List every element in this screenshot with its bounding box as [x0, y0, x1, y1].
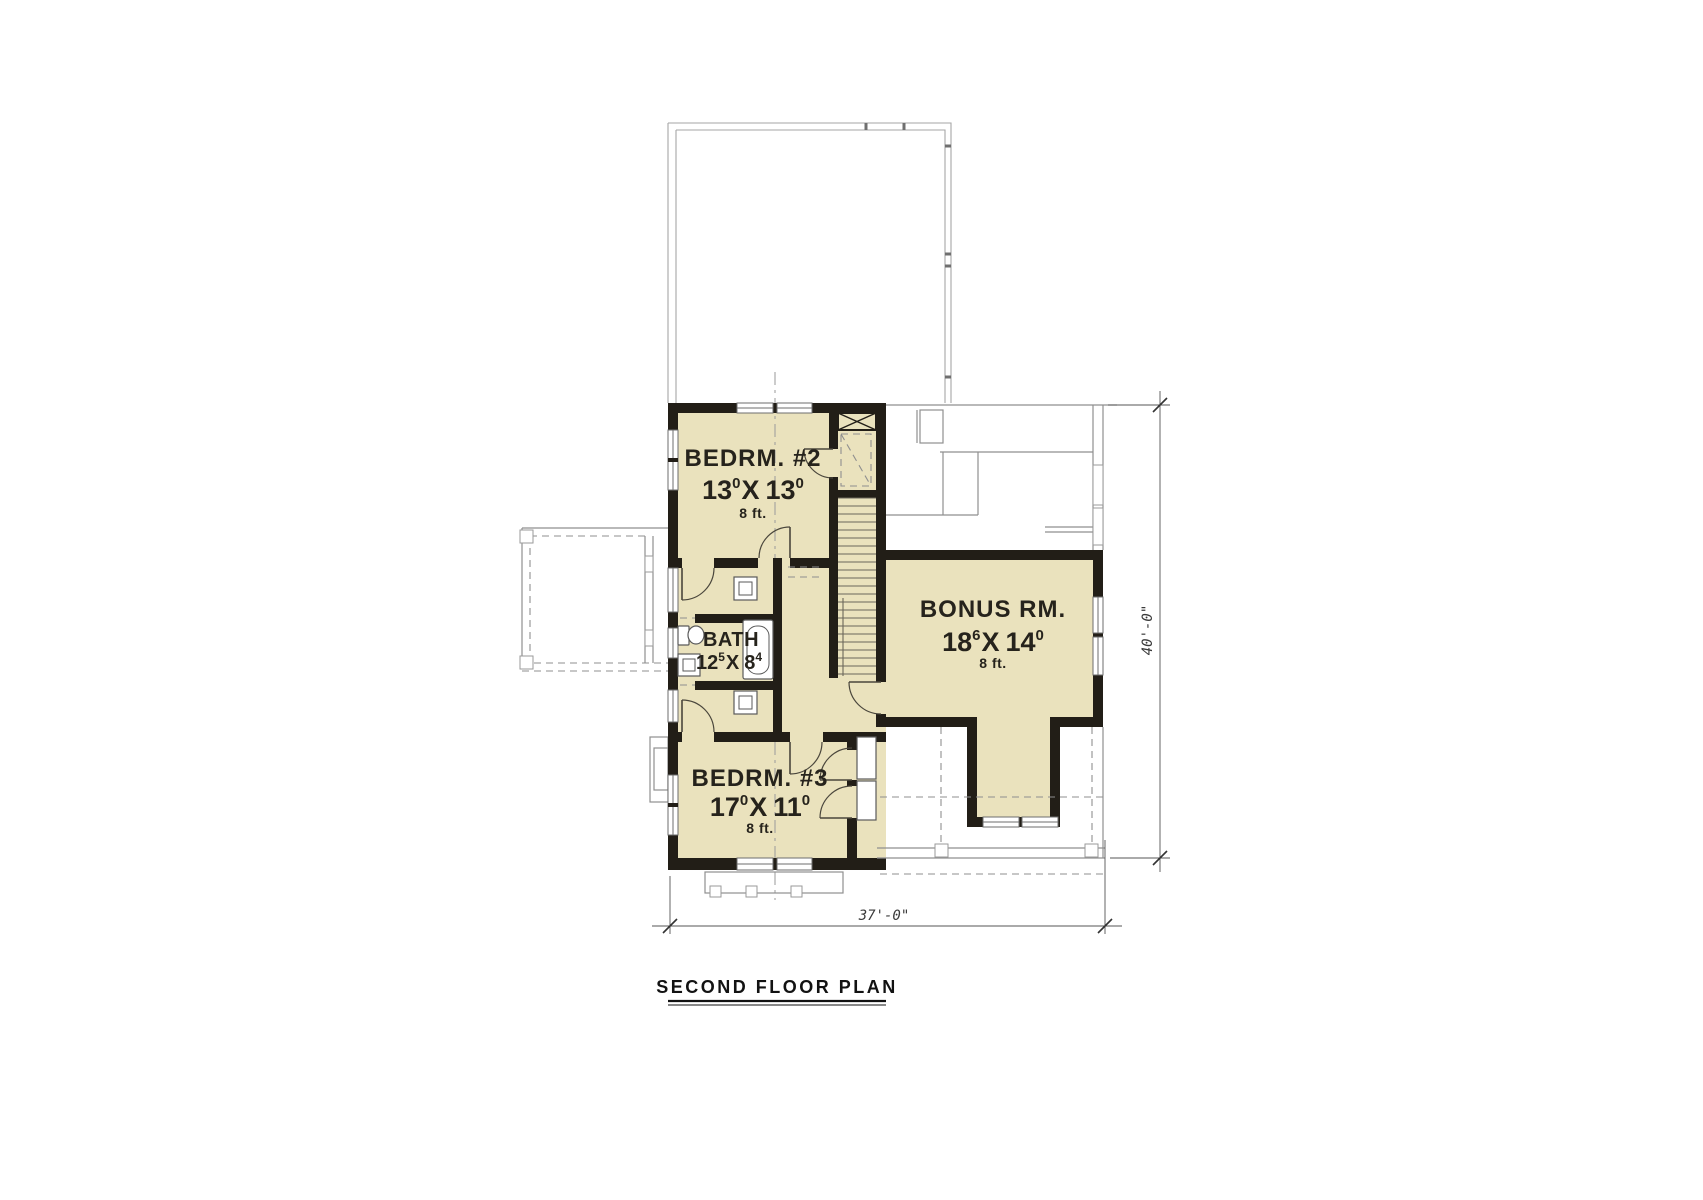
garage-outline-outer: [668, 123, 951, 403]
roof-post-2: [1085, 844, 1098, 857]
bonus-room-name: BONUS RM.: [920, 596, 1066, 623]
dimension-depth: 40'-0": [1108, 391, 1170, 872]
wall-bedroom3-top-a: [668, 732, 682, 742]
reference-window-1: [1093, 465, 1103, 505]
wall-bedroom2-bottom-a: [668, 558, 682, 568]
bumpout-inner: [654, 748, 668, 790]
roof-post-1: [935, 844, 948, 857]
porch-left-dashed-bottom: [522, 663, 668, 671]
bedroom3-closets: [857, 737, 876, 820]
porch-bottom-outline: [705, 872, 843, 897]
bedroom3-ceiling: 8 ft.: [746, 820, 773, 836]
bonus-room-ceiling: 8 ft.: [979, 655, 1006, 671]
wall-bedroom3-right-c: [847, 818, 857, 858]
porch-bottom-post-1: [710, 886, 721, 897]
wall-bedroom3-right-a: [847, 742, 857, 750]
toilet-tank: [678, 626, 689, 645]
bedroom2-size: 130X130: [702, 475, 804, 505]
closet-2: [857, 781, 876, 820]
wall-dormer-right: [1050, 717, 1060, 827]
bath-name: BATH: [703, 629, 759, 651]
wall-bath-bottom: [695, 681, 773, 690]
reference-rooms-below: [878, 405, 1117, 550]
porch-left-window-mark-1: [645, 556, 653, 572]
wall-bedroom3-right-b: [847, 780, 857, 786]
floor-plan-drawing: 37'-0" 40'-0" BEDRM. #2 130X130 8 ft. BA…: [0, 0, 1703, 1200]
bedroom2-name: BEDRM. #2: [684, 445, 821, 472]
bonus-room-size: 186X140: [942, 627, 1044, 657]
garage-roof-outline: [668, 123, 951, 403]
wall-bedroom3-top-b: [714, 732, 790, 742]
bedroom3-size: 170X110: [710, 792, 810, 822]
window-mullion: [668, 803, 678, 807]
reference-inner-walls: [878, 452, 1093, 515]
reference-half-wall: [1045, 527, 1093, 532]
toilet-bowl: [688, 626, 704, 644]
wall-closet-bottom: [829, 490, 876, 498]
wall-bonus-top: [876, 550, 1103, 560]
bedroom2-ceiling: 8 ft.: [739, 505, 766, 521]
bumpout-outer: [650, 737, 668, 802]
wall-stair-left: [829, 498, 838, 678]
bonus-room-fill: [876, 550, 1103, 827]
wall-dormer-left: [967, 717, 977, 827]
reference-window-2: [1093, 508, 1103, 545]
bath-size: 125X84: [696, 650, 762, 674]
wall-bedroom2-closet-upper: [829, 403, 838, 449]
wall-bedroom2-bottom-c: [790, 558, 829, 568]
floor-plan-sheet: 37'-0" 40'-0" BEDRM. #2 130X130 8 ft. BA…: [0, 0, 1703, 1200]
closet-1: [857, 737, 876, 779]
porch-left-outline: [520, 528, 668, 671]
porch-left-dashed-inner: [530, 536, 645, 663]
vanity-sink-2: [734, 691, 757, 714]
garage-outline-inner: [676, 130, 945, 403]
window-mullion: [668, 458, 678, 462]
dimension-depth-text: 40'-0": [1140, 605, 1156, 656]
porch-bottom-post-2: [746, 886, 757, 897]
bedroom3-name: BEDRM. #3: [691, 765, 828, 792]
garage-outline-ticks-right: [945, 146, 951, 377]
wall-bonus-bottom-left: [876, 717, 977, 727]
title-block: SECOND FLOOR PLAN: [656, 977, 898, 1005]
bumpout-below-outline: [650, 737, 668, 802]
porch-left-window-mark-2: [645, 630, 653, 646]
porch-left-post-bottom: [520, 656, 533, 669]
wall-hall-center: [773, 558, 782, 742]
porch-bottom-post-3: [791, 886, 802, 897]
vanity-sink-1: [734, 577, 757, 600]
dimension-depth-lines: [1108, 391, 1170, 872]
porch-left-post-top: [520, 530, 533, 543]
page-title: SECOND FLOOR PLAN: [656, 977, 898, 997]
wall-stair-right-upper: [876, 403, 886, 682]
wall-bedroom2-bottom-b: [714, 558, 758, 568]
reference-closet-box: [920, 410, 943, 443]
dimension-width-text: 37'-0": [858, 908, 910, 924]
porch-bottom-rect: [705, 872, 843, 893]
garage-outline-ticks-top: [866, 123, 904, 130]
